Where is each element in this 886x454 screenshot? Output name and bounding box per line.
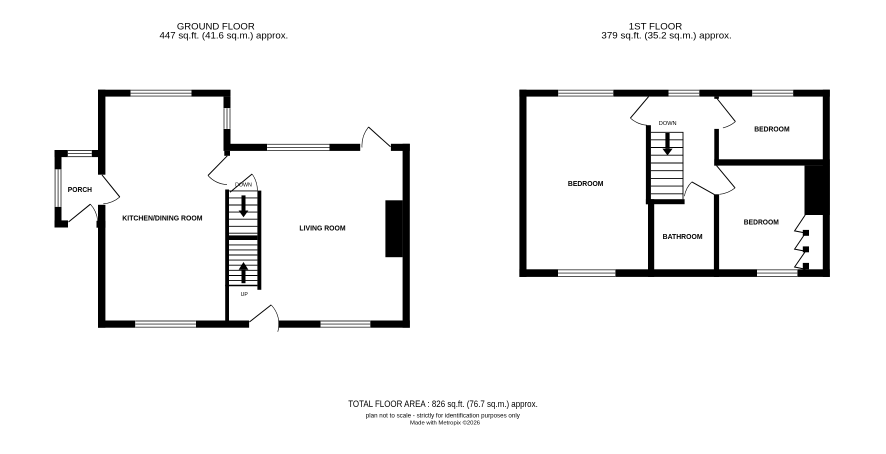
svg-text:DOWN: DOWN: [235, 183, 252, 189]
svg-text:TOTAL FLOOR AREA : 826 sq.ft.: TOTAL FLOOR AREA : 826 sq.ft. (76.7 sq.m…: [348, 399, 538, 409]
svg-text:379 sq.ft. (35.2 sq.m.) approx: 379 sq.ft. (35.2 sq.m.) approx.: [601, 31, 731, 41]
svg-text:BEDROOM: BEDROOM: [754, 124, 789, 133]
svg-text:DOWN: DOWN: [659, 121, 677, 127]
svg-text:BEDROOM: BEDROOM: [568, 179, 604, 188]
svg-text:LIVING ROOM: LIVING ROOM: [299, 223, 345, 232]
svg-text:KITCHEN/DINING ROOM: KITCHEN/DINING ROOM: [122, 214, 202, 223]
svg-text:BEDROOM: BEDROOM: [744, 218, 779, 227]
svg-text:UP: UP: [241, 292, 249, 298]
svg-text:BATHROOM: BATHROOM: [663, 232, 703, 241]
svg-text:Made with Metropix ©2026: Made with Metropix ©2026: [410, 419, 481, 426]
svg-text:plan not to scale - strictly f: plan not to scale - strictly for identif…: [366, 412, 521, 419]
svg-text:447 sq.ft. (41.6 sq.m.) approx: 447 sq.ft. (41.6 sq.m.) approx.: [160, 31, 289, 41]
svg-text:PORCH: PORCH: [68, 185, 92, 194]
